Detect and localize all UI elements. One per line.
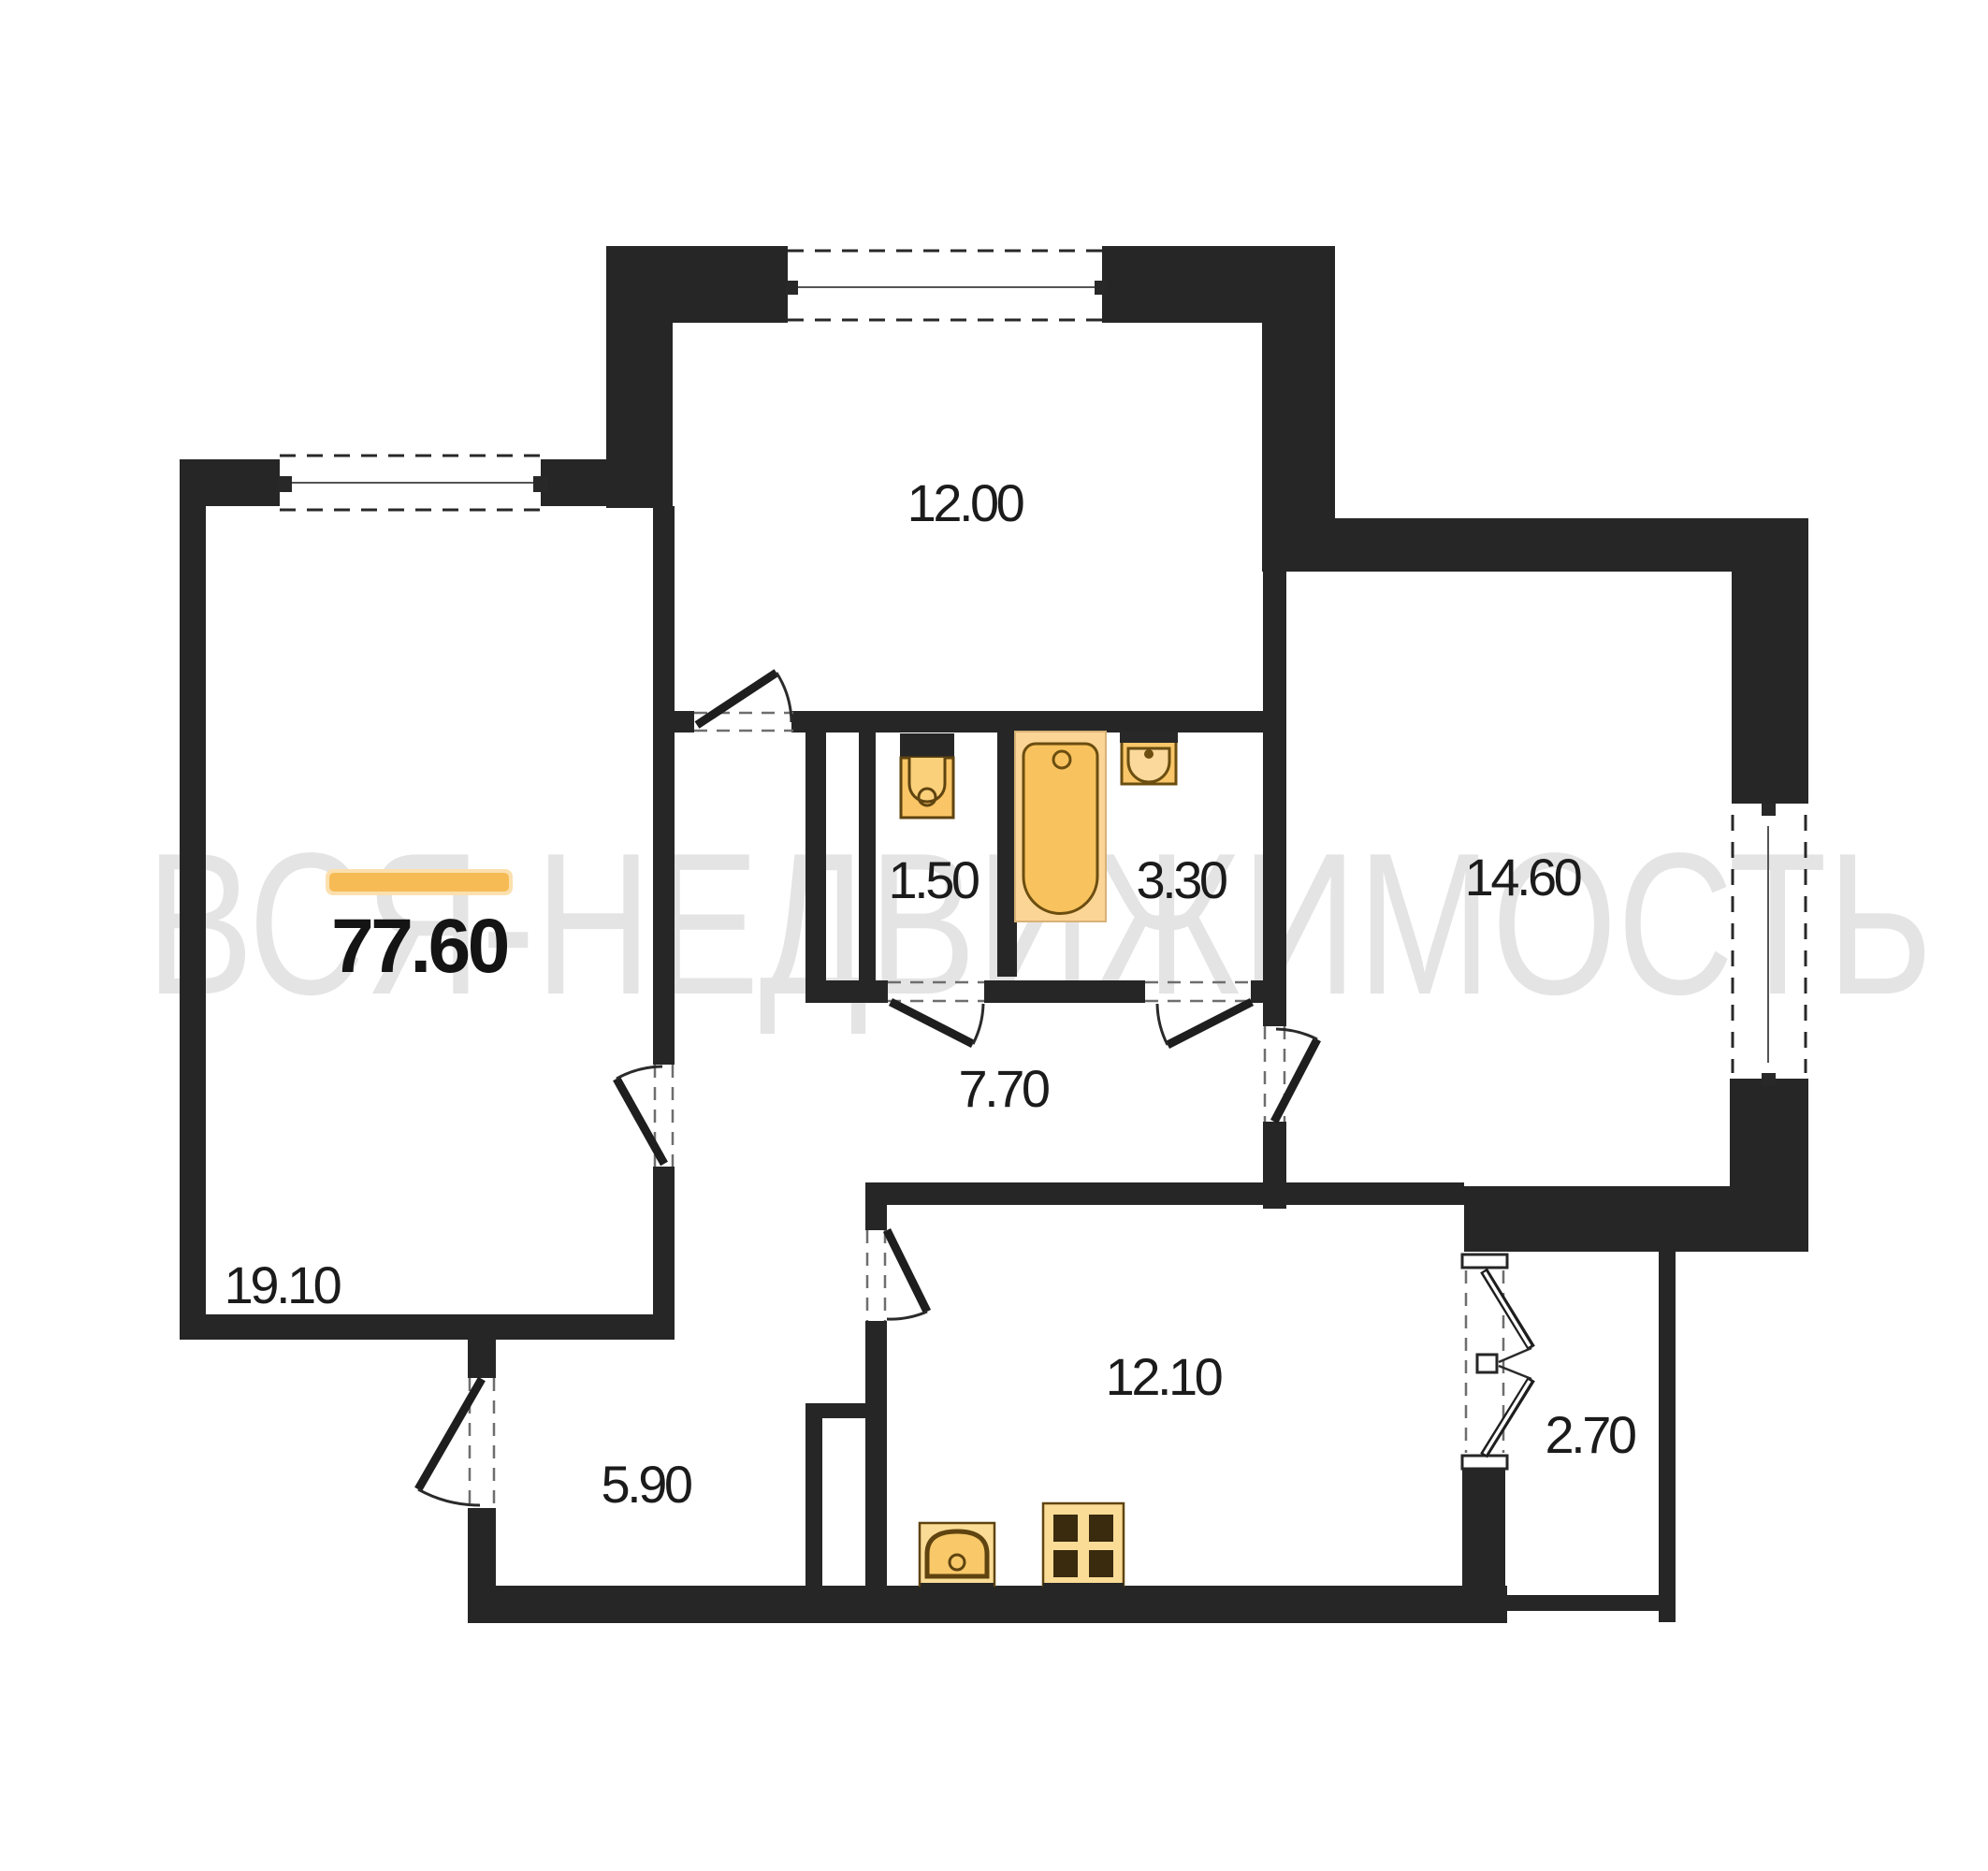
svg-text:19.10: 19.10: [225, 1255, 341, 1314]
svg-text:12.10: 12.10: [1106, 1347, 1222, 1406]
svg-text:2.70: 2.70: [1545, 1405, 1635, 1464]
svg-text:7.70: 7.70: [959, 1059, 1049, 1118]
svg-text:12.00: 12.00: [907, 473, 1023, 532]
svg-text:3.30: 3.30: [1137, 850, 1226, 909]
svg-text:5.90: 5.90: [602, 1455, 691, 1514]
svg-text:14.60: 14.60: [1465, 848, 1581, 906]
svg-text:77.60: 77.60: [331, 904, 508, 989]
svg-text:1.50: 1.50: [889, 850, 979, 909]
